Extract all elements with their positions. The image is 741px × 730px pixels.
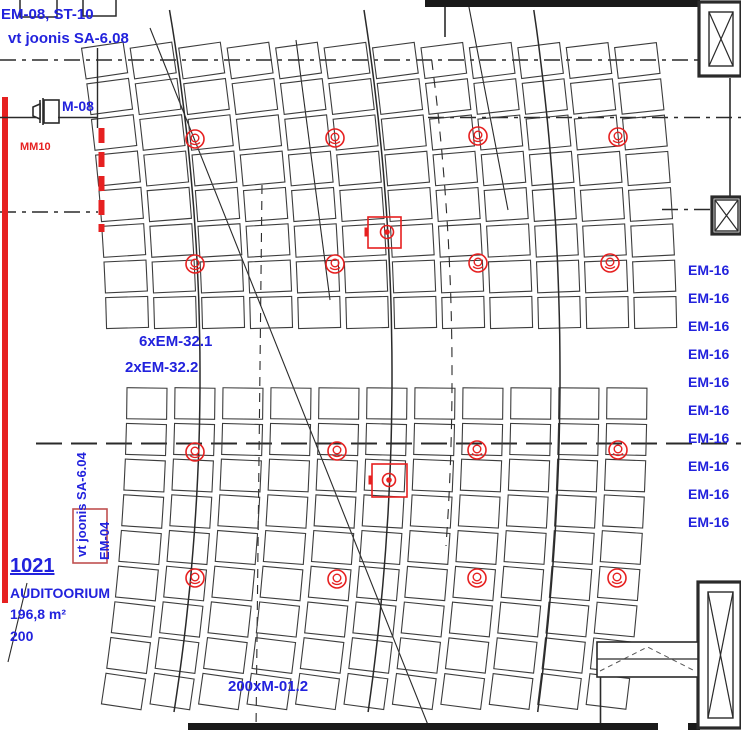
seat [172, 459, 213, 492]
seat [410, 495, 452, 528]
seat [246, 224, 290, 257]
seat [392, 260, 435, 293]
seat [381, 115, 426, 150]
seat [260, 566, 303, 601]
speaker-inner [333, 446, 341, 454]
label-em32-1: 6xEM-32.1 [139, 334, 212, 350]
speaker-mouth [330, 268, 340, 270]
seat [150, 224, 194, 258]
seat [511, 388, 551, 419]
shaft-outer [699, 2, 741, 76]
seat [481, 151, 525, 185]
seat [195, 187, 239, 221]
speaker-inner [191, 447, 199, 455]
seat [362, 495, 404, 528]
seat [538, 674, 582, 710]
speaker-inner [606, 258, 614, 266]
seat [501, 566, 543, 600]
seat [107, 638, 151, 674]
seat [271, 388, 311, 419]
label-m08: M-08 [62, 99, 94, 114]
seat [160, 602, 203, 637]
seat [489, 260, 532, 293]
seat [433, 151, 477, 185]
seat [344, 673, 388, 709]
device-dot [387, 478, 391, 482]
speaker-inner [191, 573, 199, 581]
seat [394, 296, 437, 328]
seat [449, 602, 492, 637]
seat [150, 673, 194, 709]
seat [305, 602, 348, 637]
seat [270, 423, 311, 455]
seat [583, 224, 627, 257]
seat [184, 78, 230, 114]
seat [357, 566, 400, 600]
speaker-inner [473, 445, 481, 453]
speaker-mouth [605, 267, 615, 269]
shaft-x-box [712, 197, 741, 234]
seat [144, 151, 189, 186]
seat [240, 151, 285, 186]
seat [623, 115, 668, 150]
speaker-symbol [601, 254, 619, 272]
seat [215, 531, 257, 565]
top-wall [425, 0, 700, 7]
room-name: AUDITOORIUM [10, 586, 110, 601]
speaker-symbol [186, 130, 204, 148]
speaker-mouth [190, 582, 200, 584]
seat [415, 388, 455, 419]
seat [220, 459, 261, 492]
seat [102, 224, 146, 258]
floorplan-canvas: EM-08, ST-10 vt joonis SA-6.08 M-08 MM10… [0, 0, 741, 730]
seat [223, 388, 263, 420]
m08-body [44, 100, 59, 123]
seat [232, 79, 277, 115]
room-area: 196,8 m² [10, 607, 66, 622]
seat [390, 224, 434, 257]
floorplan-drawing [0, 0, 741, 730]
seat [629, 188, 673, 222]
seat [634, 297, 677, 329]
speaker-mouth [472, 582, 482, 584]
seat [314, 495, 356, 528]
speaker-outer [186, 569, 204, 587]
seat [498, 602, 541, 637]
seat [236, 115, 281, 150]
speaker-mouth [190, 456, 200, 458]
seat [408, 531, 450, 565]
seat [542, 638, 585, 673]
seat [294, 224, 338, 257]
seat [167, 530, 209, 564]
speaker-symbol [326, 255, 344, 273]
seat [349, 638, 392, 673]
seat [256, 602, 299, 637]
seat [346, 296, 389, 328]
seat [202, 296, 245, 328]
seat [312, 531, 354, 565]
seat [140, 115, 185, 150]
seat [586, 674, 629, 710]
speaker-mouth [190, 143, 200, 145]
seat [204, 638, 248, 674]
seat [605, 459, 646, 492]
seat [442, 296, 485, 328]
seat-block-upper-block [82, 42, 677, 329]
label-em04: EM-04 [98, 522, 112, 560]
speaker-inner [474, 131, 482, 139]
label-em16-7: EM-16 [688, 430, 729, 446]
seat [292, 188, 336, 222]
m08-device-icon [33, 98, 59, 125]
seat [619, 79, 664, 114]
seat [631, 224, 675, 257]
seat [385, 151, 429, 185]
seat [556, 459, 597, 492]
seat [474, 79, 519, 114]
seat [147, 187, 191, 221]
seat [298, 296, 341, 328]
device-dot [385, 230, 389, 234]
seat [578, 151, 622, 185]
seat [490, 296, 533, 328]
construction-line [468, 2, 508, 210]
seat [268, 459, 309, 492]
seat [438, 224, 482, 257]
speaker-inner [473, 573, 481, 581]
speaker-mouth [613, 141, 623, 143]
seat [366, 423, 407, 455]
speaker-mouth [473, 140, 483, 142]
seat [119, 530, 161, 564]
counter-element [597, 642, 698, 677]
seat [487, 224, 531, 257]
speaker-inner [474, 258, 482, 266]
shaft-x-box [699, 2, 741, 76]
seat [250, 296, 293, 328]
label-em16-5: EM-16 [688, 374, 729, 390]
seat [456, 531, 498, 565]
seat [111, 602, 154, 637]
seat [192, 151, 237, 186]
seat [126, 423, 167, 455]
seat [600, 531, 642, 565]
label-em16-6: EM-16 [688, 402, 729, 418]
speaker-symbol [469, 127, 487, 145]
seat [174, 423, 215, 455]
room-capacity: 200 [10, 629, 33, 644]
seat [152, 260, 195, 293]
label-em08-st10: EM-08, ST-10 [1, 7, 94, 23]
speaker-inner [333, 574, 341, 582]
seat [494, 638, 537, 673]
seat [175, 388, 215, 420]
seat [367, 388, 407, 419]
seat [405, 566, 448, 600]
seat [414, 423, 455, 455]
construction-line [256, 185, 262, 730]
seat [460, 459, 501, 492]
label-em16-9: EM-16 [688, 486, 729, 502]
seat [316, 459, 357, 492]
seat [478, 115, 523, 150]
label-em16-1: EM-16 [688, 262, 729, 278]
seat [580, 188, 624, 222]
aisle-arc [534, 10, 560, 712]
seat [99, 187, 143, 221]
room-number: 1021 [10, 556, 55, 577]
ceiling-device-symbol [365, 217, 402, 248]
seat [412, 459, 453, 492]
speaker-outer [186, 443, 204, 461]
seat [458, 495, 500, 528]
seat [552, 531, 594, 565]
speaker-outer [328, 442, 346, 460]
seat [212, 566, 255, 601]
seat [300, 638, 343, 674]
speaker-mouth [332, 583, 342, 585]
speaker-mouth [473, 267, 483, 269]
seat [445, 638, 488, 673]
seat [319, 388, 359, 419]
device-notch [369, 476, 373, 485]
speaker-outer [186, 130, 204, 148]
speaker-symbol [328, 442, 346, 460]
label-em16-4: EM-16 [688, 346, 729, 362]
speaker-symbol [186, 443, 204, 461]
label-em16-3: EM-16 [688, 318, 729, 334]
seat [263, 531, 305, 565]
speaker-outer [328, 570, 346, 588]
speaker-symbol [186, 569, 204, 587]
seat [122, 495, 164, 528]
seat [571, 79, 616, 114]
seat [285, 115, 330, 150]
seat [248, 260, 291, 293]
speaker-symbol [608, 569, 626, 587]
speaker-outer [469, 254, 487, 272]
speaker-symbol [468, 569, 486, 587]
seat [603, 495, 645, 528]
seat [506, 495, 548, 528]
seat [344, 260, 387, 293]
seat [559, 388, 599, 419]
seat [426, 79, 471, 115]
seat [208, 602, 251, 637]
seat [106, 296, 149, 328]
seat [508, 459, 549, 492]
speaker-outer [601, 254, 619, 272]
seat [101, 673, 145, 710]
label-200xm012: 200xM-01.2 [228, 679, 308, 695]
seat [546, 602, 589, 637]
seat [441, 674, 485, 710]
seat [329, 79, 374, 115]
shaft-outer [698, 582, 741, 728]
seat [463, 388, 503, 419]
label-em16-8: EM-16 [688, 458, 729, 474]
speaker-symbol [328, 570, 346, 588]
seat [337, 151, 382, 186]
seat [555, 495, 597, 528]
seat [489, 674, 533, 710]
seat [430, 115, 475, 150]
seat [104, 260, 147, 293]
shaft-x-box [698, 582, 741, 728]
seat [154, 296, 197, 328]
seat [296, 260, 339, 293]
bottom-wall [188, 723, 658, 730]
seat [585, 260, 628, 293]
label-em16-10: EM-16 [688, 514, 729, 530]
seat [91, 115, 136, 151]
seat [115, 566, 158, 601]
seat [549, 566, 591, 600]
seat [397, 638, 440, 673]
seat [266, 495, 308, 528]
seat [484, 188, 528, 222]
seat [222, 423, 263, 455]
seat [170, 495, 212, 528]
seat [594, 602, 637, 637]
seat [243, 187, 287, 221]
seat [200, 260, 243, 293]
seat [360, 531, 402, 565]
speaker-outer [469, 127, 487, 145]
seat [342, 224, 386, 257]
seat [127, 388, 167, 420]
speaker-inner [613, 573, 621, 581]
seat [218, 495, 260, 528]
seat [318, 423, 359, 455]
stage-wall-red-bar [2, 97, 8, 603]
seat [607, 388, 647, 419]
seat [353, 602, 396, 637]
label-mm10: MM10 [20, 142, 51, 154]
construction-line [150, 28, 430, 730]
speaker-outer [326, 255, 344, 273]
seat [124, 459, 165, 492]
speaker-symbol [469, 254, 487, 272]
label-em16-2: EM-16 [688, 290, 729, 306]
seat [377, 79, 422, 115]
seat [155, 638, 199, 674]
device-notch [365, 228, 369, 237]
seat [436, 188, 480, 222]
speaker-outer [468, 569, 486, 587]
seat [510, 423, 551, 455]
label-vt-joonis-sa604: vt joonis SA-6.04 [75, 452, 89, 557]
seat [135, 78, 181, 114]
speaker-outer [608, 569, 626, 587]
seat [252, 638, 295, 674]
seat [586, 297, 629, 329]
seat [504, 531, 546, 565]
speaker-mouth [612, 582, 622, 584]
m08-lens [33, 104, 40, 119]
seat [401, 602, 444, 637]
speaker-inner [614, 445, 622, 453]
label-em32-2: 2xEM-32.2 [125, 360, 198, 376]
seat [633, 260, 676, 293]
label-vt-joonis-sa608: vt joonis SA-6.08 [8, 31, 129, 47]
seat [626, 151, 670, 185]
seat [558, 424, 599, 456]
